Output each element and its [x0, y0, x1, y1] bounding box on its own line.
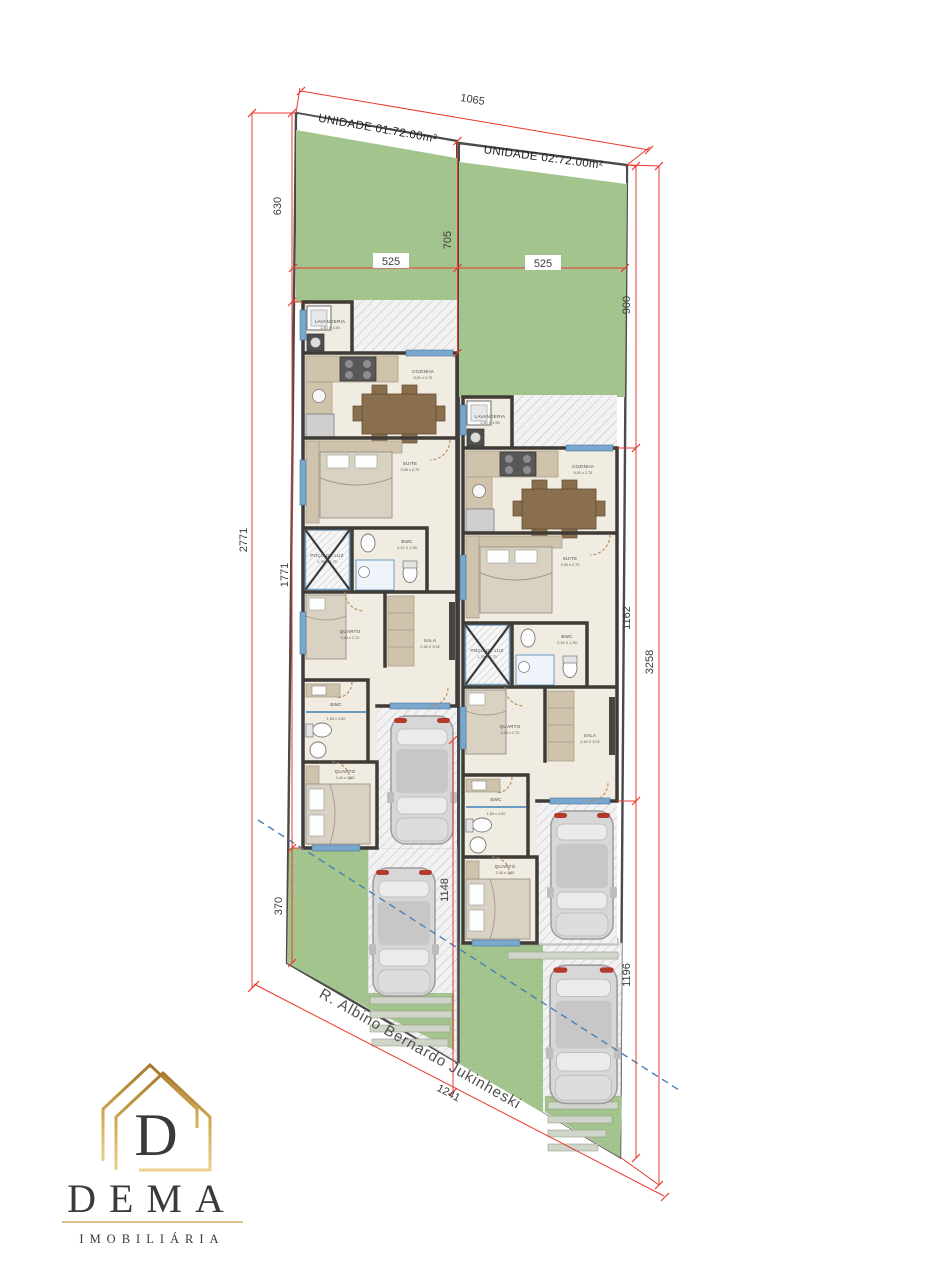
- dim-lot1-width: 525: [382, 256, 400, 268]
- logo-brand: DEMA: [67, 1176, 237, 1221]
- logo-initial: D: [134, 1102, 177, 1168]
- dim-top: 1065: [459, 92, 485, 108]
- dim-left-lower: 370: [273, 897, 285, 915]
- front-green-unit1: [287, 848, 368, 1008]
- dema-logo: D DEMA IMOBILIÁRIA: [62, 1065, 243, 1246]
- car-driveway-unit1: [369, 868, 439, 996]
- dim-left-total: 2771: [238, 528, 250, 552]
- dim-drive: 1148: [439, 878, 451, 902]
- car-garage-unit1: [387, 716, 457, 844]
- dim-lot2-width: 525: [534, 258, 552, 270]
- car-garage-unit2: [547, 811, 617, 939]
- site-plan-page: LAVANDERIA 1,50 X 1,50 COZINHA 5,01 x 2,…: [0, 0, 930, 1280]
- site-plan-drawing: LAVANDERIA 1,50 X 1,50 COZINHA 5,01 x 2,…: [0, 0, 930, 1280]
- dim-right-upper: 900: [621, 296, 633, 314]
- dim-street-front: 1241: [435, 1082, 462, 1104]
- dim-right-total: 3258: [644, 650, 656, 674]
- backyard-green-unit2: [459, 161, 627, 397]
- dim-right-lower: 1196: [621, 963, 633, 987]
- car-driveway-unit2: [546, 965, 622, 1103]
- logo-tagline: IMOBILIÁRIA: [79, 1232, 224, 1246]
- dim-divider: 705: [442, 231, 454, 249]
- dim-left-mid: 1771: [279, 563, 291, 587]
- dim-left-upper: 630: [272, 197, 284, 215]
- backyard-green-unit1: [296, 130, 457, 302]
- dim-right-mid: 1162: [621, 606, 633, 630]
